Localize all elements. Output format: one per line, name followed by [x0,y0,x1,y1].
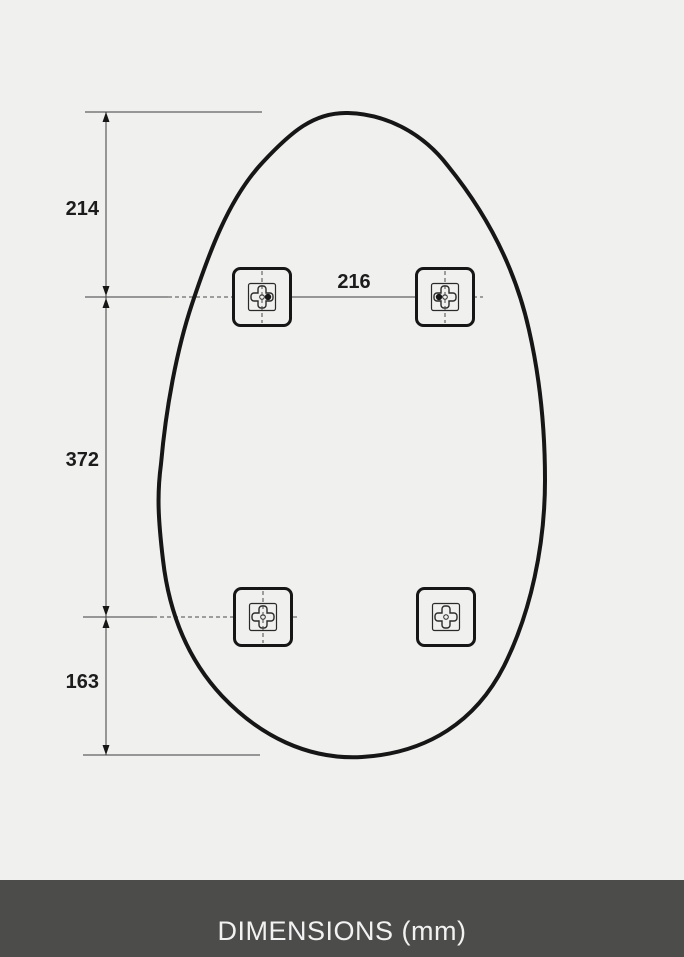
mirror-outline [159,113,545,757]
dim-label-bottom-offset: 163 [66,671,99,693]
dimension-diagram: 214 372 163 216 [0,0,684,880]
arrow-down-row2 [103,606,110,616]
mounting-bracket-bottom-left [235,589,292,646]
dim-label-top-offset: 214 [66,198,100,220]
arrow-down-bottom [103,745,110,755]
mounting-bracket-top-right [417,269,474,326]
diagram-canvas: 214 372 163 216 [0,0,684,880]
footer-label: DIMENSIONS (mm) [218,918,467,945]
arrow-up-row2 [103,618,110,628]
mounting-bracket-bottom-right [418,589,475,646]
arrow-up-row1 [103,298,110,308]
arrow-down-row1 [103,286,110,296]
footer-bar: DIMENSIONS (mm) [0,880,684,957]
dim-label-horizontal-spacing: 216 [337,271,370,293]
dimension-arrow-dot [436,294,442,300]
dim-label-vertical-spacing: 372 [66,449,99,471]
mounting-bracket-top-left [234,269,291,326]
arrow-up-top [103,112,110,122]
dimension-arrow-dot [265,294,271,300]
